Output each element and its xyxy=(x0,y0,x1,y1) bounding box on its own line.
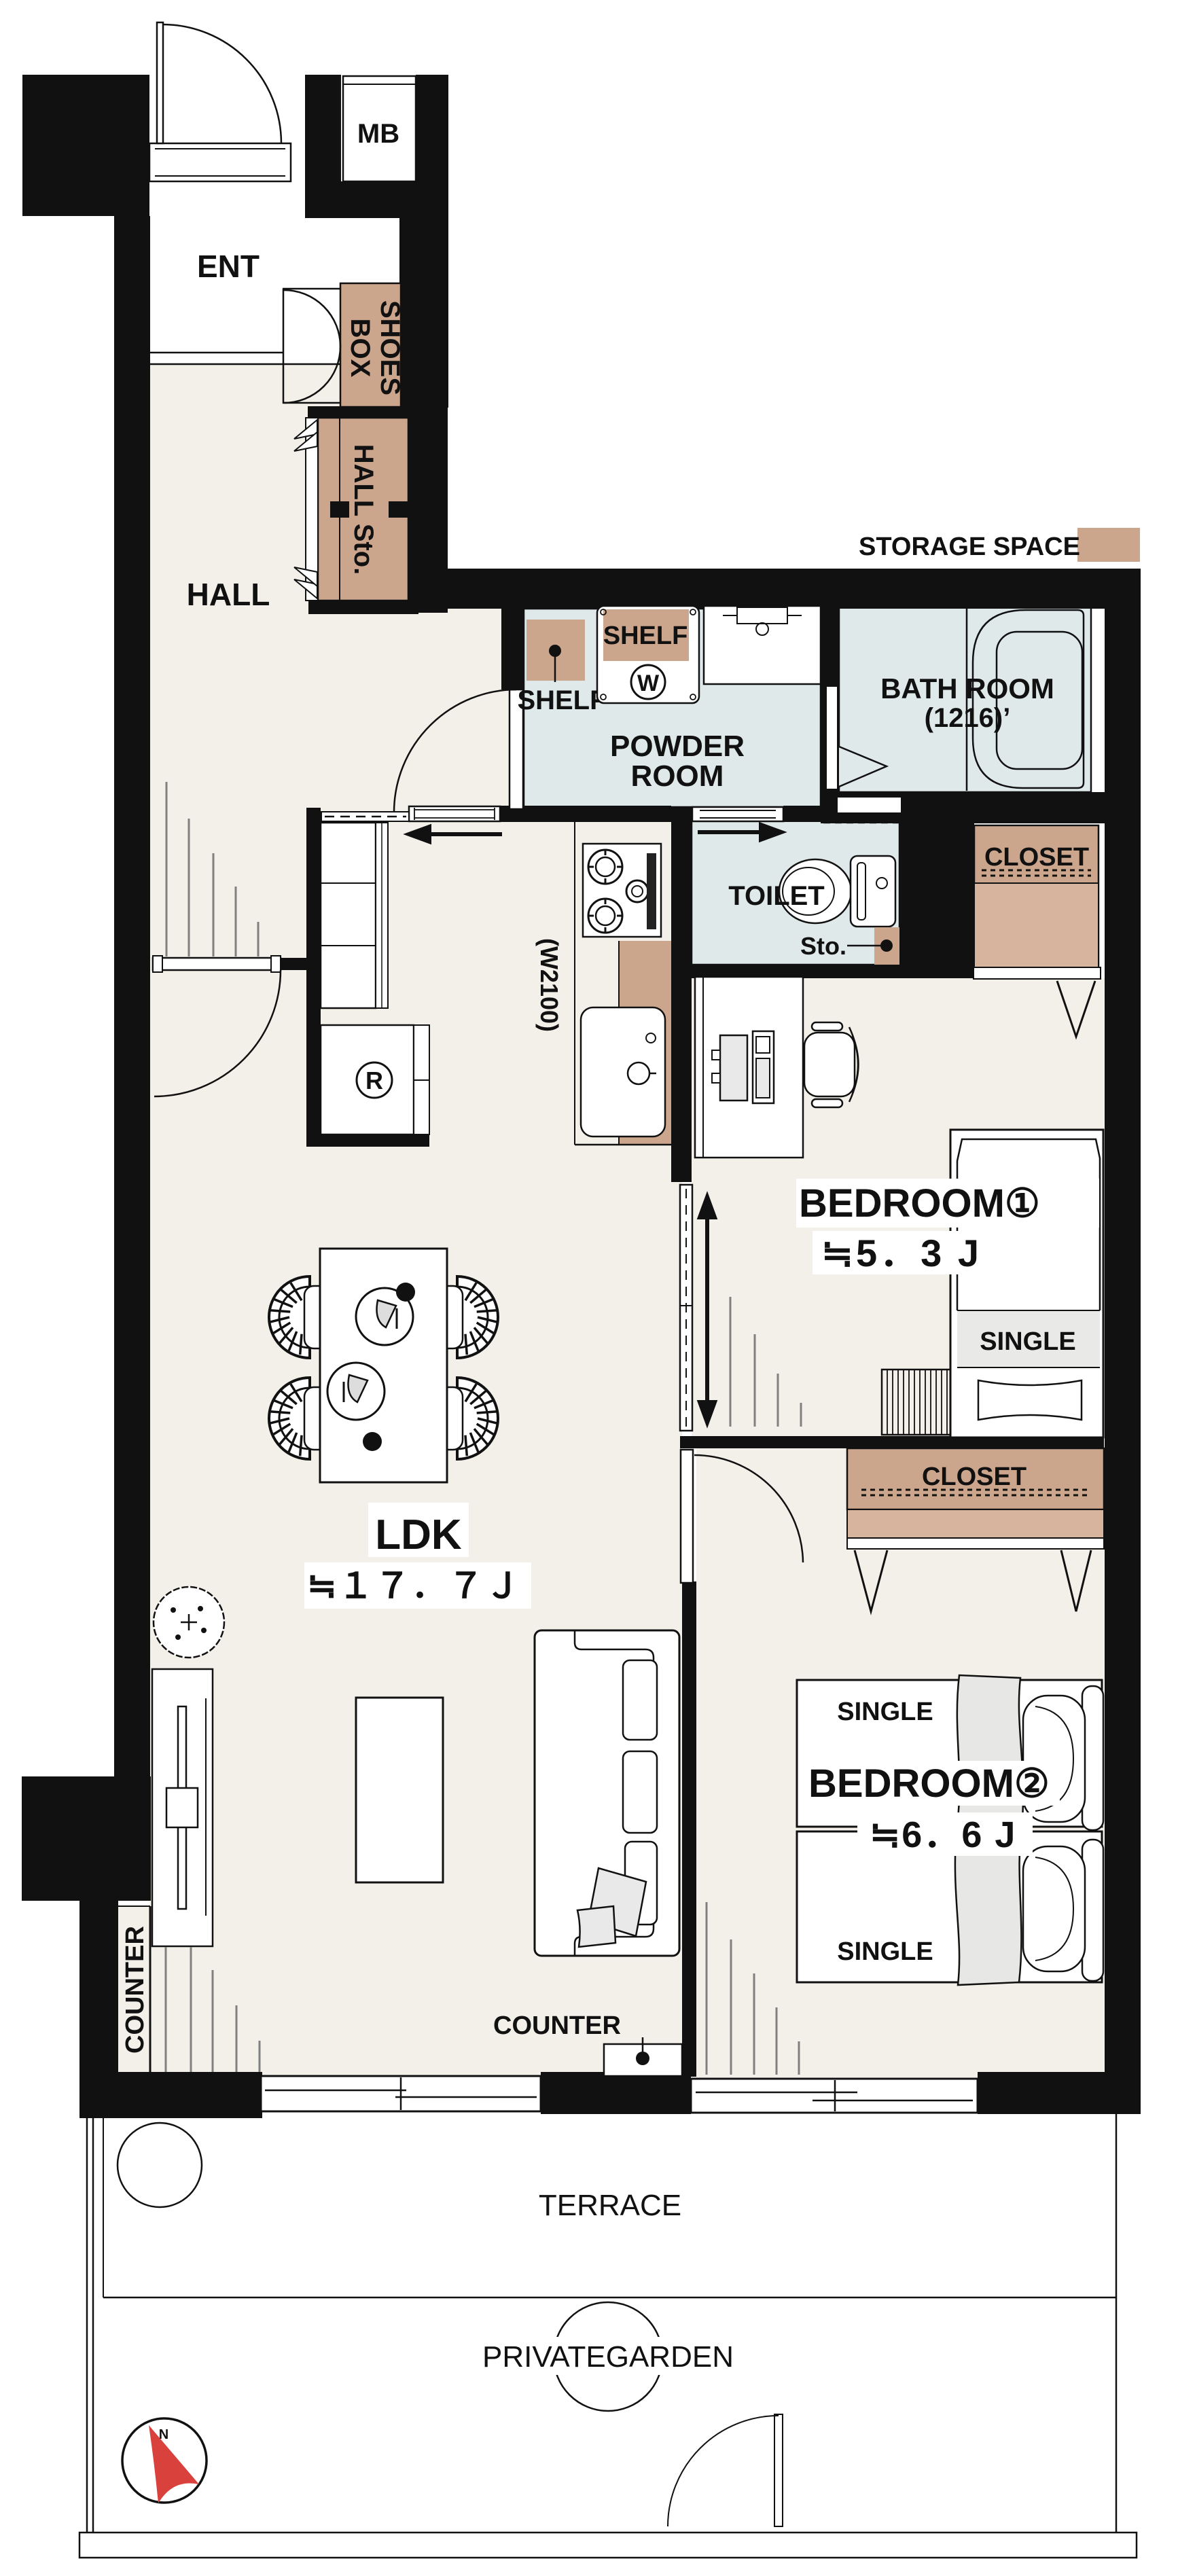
svg-text:BOX: BOX xyxy=(345,319,375,378)
svg-text:TERRACE: TERRACE xyxy=(539,2189,681,2222)
svg-text:CLOSET: CLOSET xyxy=(922,1463,1027,1491)
svg-text:PRIVATEGARDEN: PRIVATEGARDEN xyxy=(482,2340,734,2374)
svg-text:COUNTER: COUNTER xyxy=(493,2011,621,2040)
svg-text:HALL Sto.: HALL Sto. xyxy=(349,444,378,575)
svg-text:CLOSET: CLOSET xyxy=(984,843,1089,872)
svg-text:STORAGE SPACE: STORAGE SPACE xyxy=(859,533,1080,561)
svg-text:W: W xyxy=(637,670,660,696)
svg-text:SHELF: SHELF xyxy=(517,685,606,715)
svg-text:COUNTER: COUNTER xyxy=(121,1926,149,2054)
svg-text:SINGLE: SINGLE xyxy=(980,1327,1075,1356)
svg-text:N: N xyxy=(159,2427,168,2442)
svg-text:(1216)ʼ: (1216)ʼ xyxy=(925,703,1011,733)
svg-text:ROOM: ROOM xyxy=(631,759,724,793)
svg-text:≒5．3 J: ≒5．3 J xyxy=(821,1232,982,1274)
svg-text:TOILET: TOILET xyxy=(728,881,824,911)
svg-text:≒6．6 J: ≒6．6 J xyxy=(870,1814,1016,1855)
svg-text:SINGLE: SINGLE xyxy=(837,1937,933,1966)
svg-text:SHOES: SHOES xyxy=(375,300,405,395)
svg-text:BEDROOM①: BEDROOM① xyxy=(799,1181,1040,1226)
svg-text:HALL: HALL xyxy=(187,577,270,612)
svg-text:≒１７．７Ｊ: ≒１７．７Ｊ xyxy=(307,1567,522,1606)
svg-text:SINGLE: SINGLE xyxy=(837,1698,933,1726)
svg-text:POWDER: POWDER xyxy=(610,730,745,763)
svg-text:BATH ROOM: BATH ROOM xyxy=(880,673,1054,704)
svg-text:BEDROOM②: BEDROOM② xyxy=(808,1761,1050,1806)
svg-text:MB: MB xyxy=(357,119,399,149)
svg-text:SHELF: SHELF xyxy=(603,622,688,650)
svg-text:Sto.: Sto. xyxy=(800,932,846,960)
svg-text:LDK: LDK xyxy=(375,1511,462,1558)
svg-text:ENT: ENT xyxy=(197,249,260,284)
svg-text:R: R xyxy=(365,1067,383,1094)
svg-text:(W2100): (W2100) xyxy=(535,938,563,1032)
